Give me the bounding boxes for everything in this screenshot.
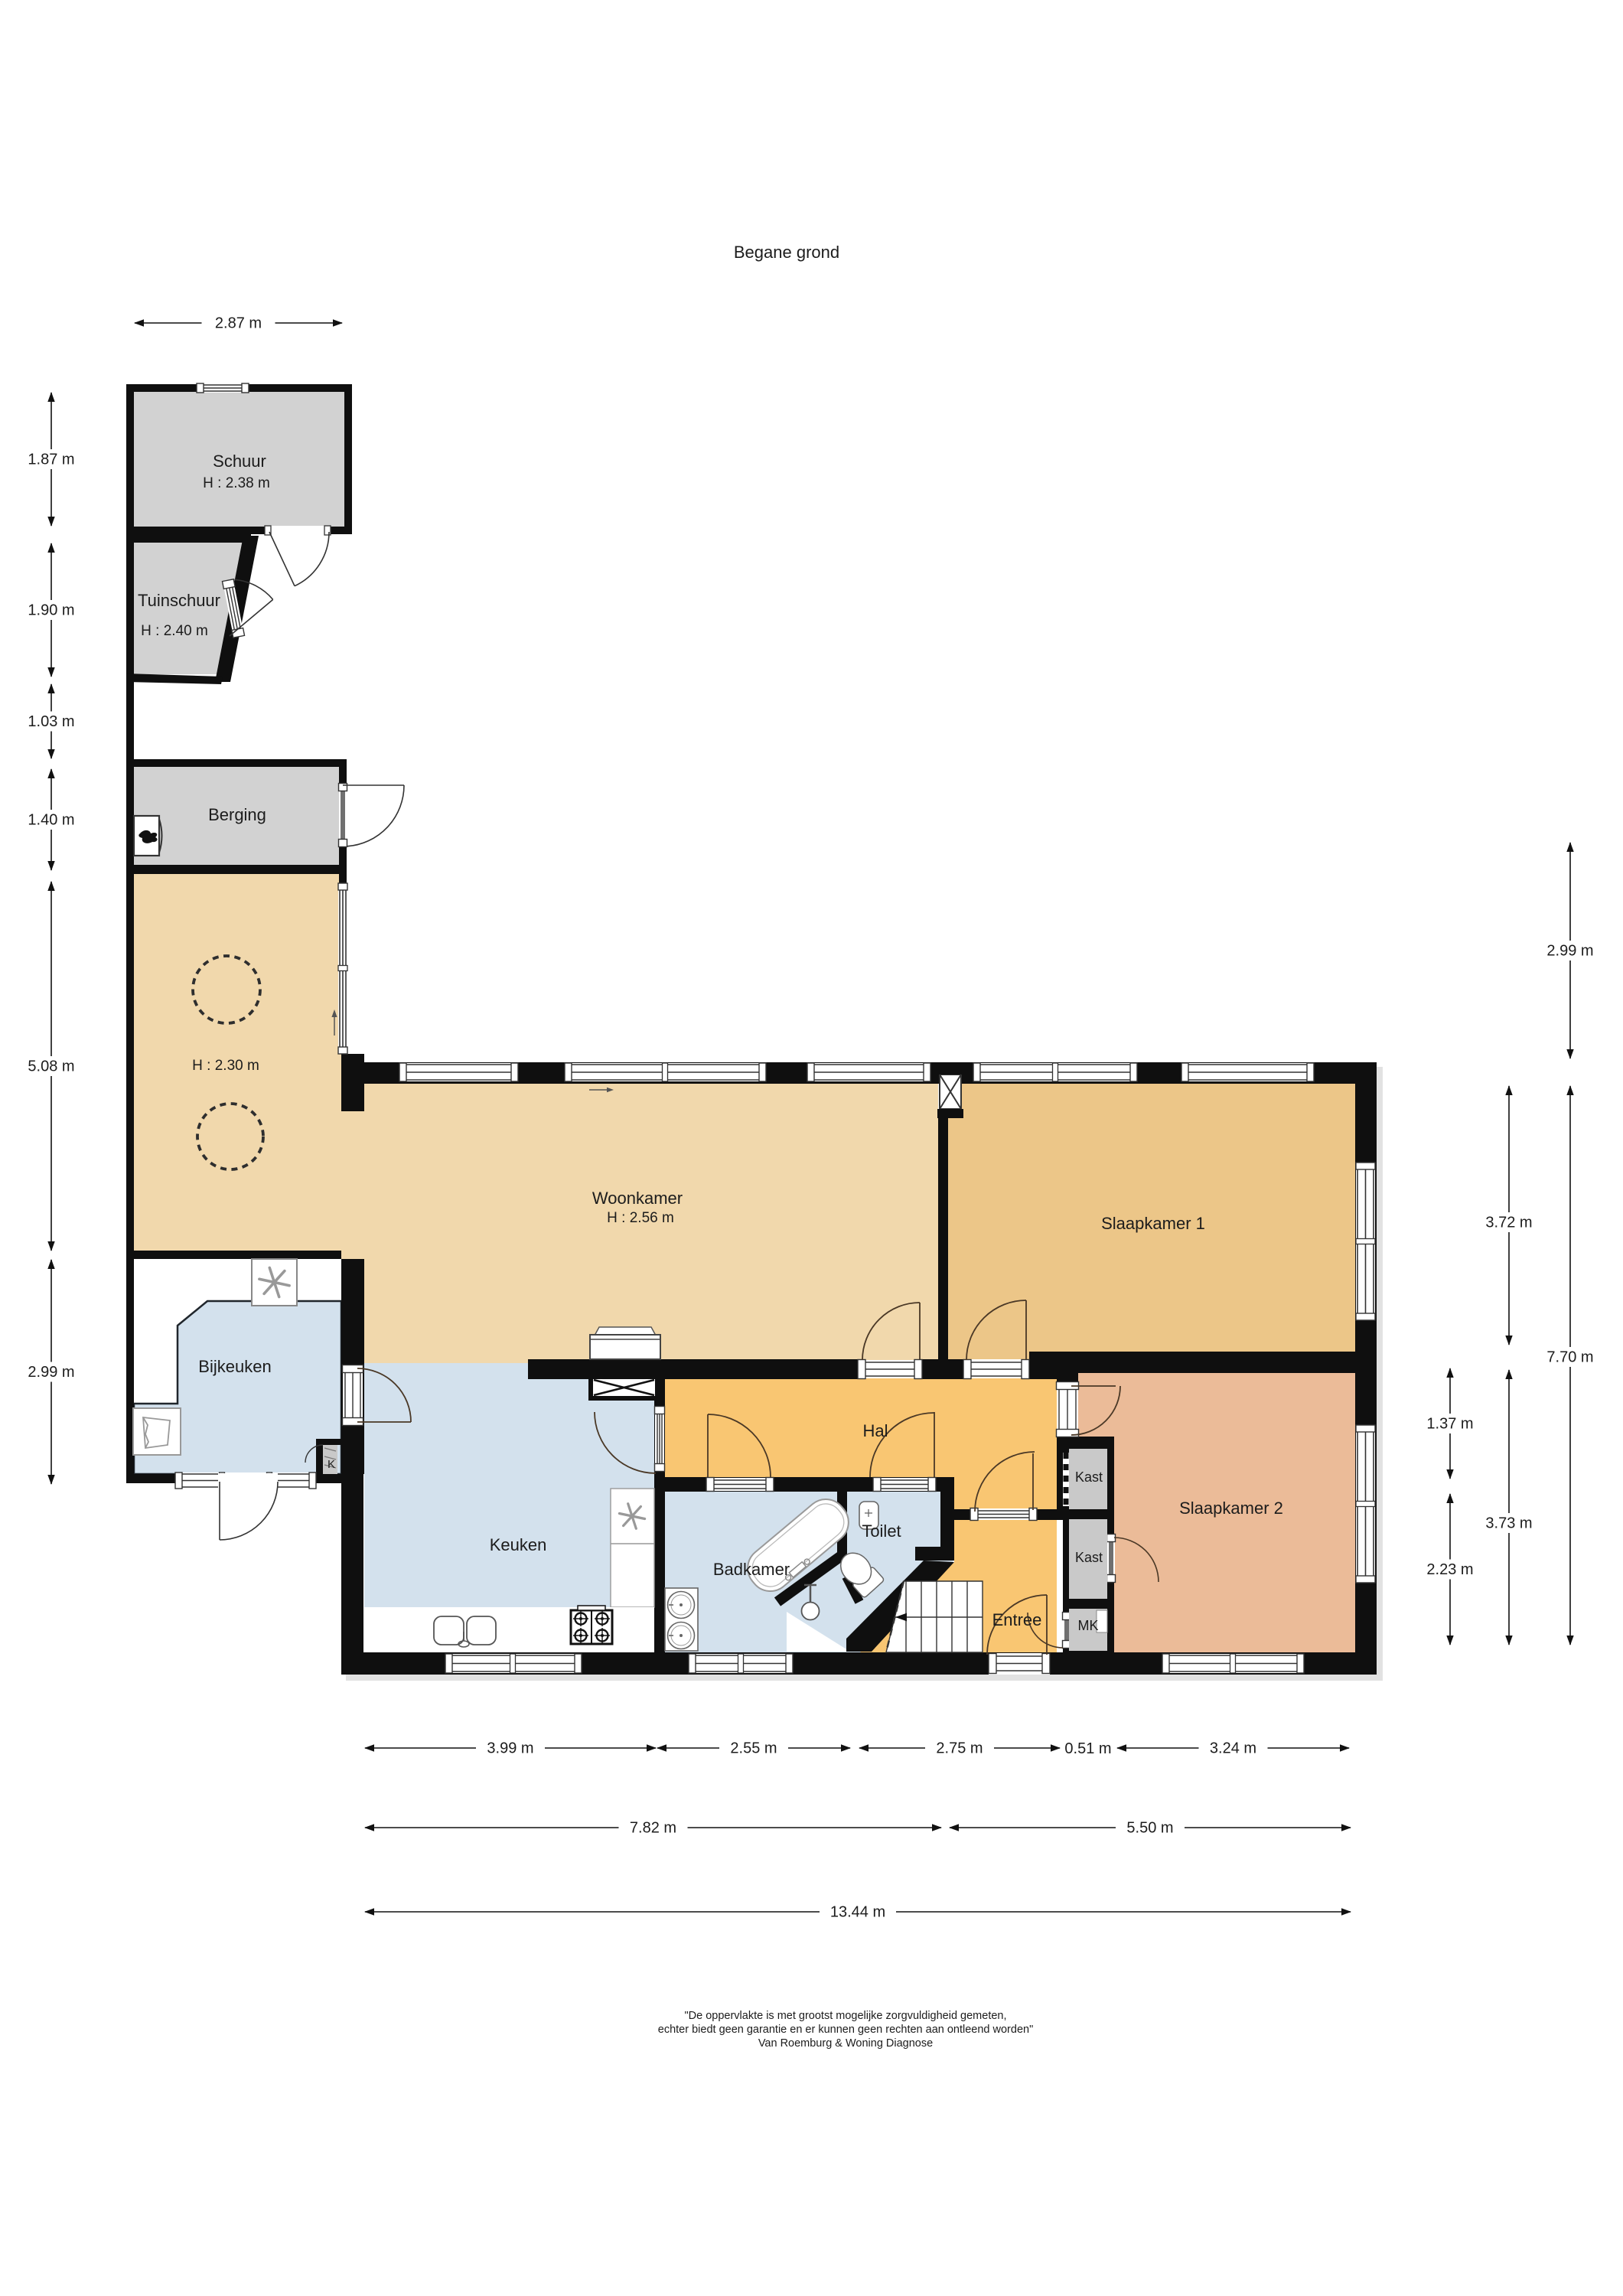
- svg-text:2.99 m: 2.99 m: [1546, 943, 1593, 960]
- svg-text:Tuinschuur: Tuinschuur: [138, 591, 220, 610]
- svg-text:3.72 m: 3.72 m: [1485, 1215, 1532, 1231]
- svg-text:Hal: Hal: [862, 1421, 888, 1440]
- svg-text:K: K: [328, 1458, 335, 1471]
- svg-text:3.99 m: 3.99 m: [487, 1740, 533, 1757]
- svg-text:echter biedt geen garantie en: echter biedt geen garantie en er kunnen …: [658, 2024, 1033, 2036]
- svg-text:1.37 m: 1.37 m: [1426, 1416, 1473, 1433]
- svg-text:Berging: Berging: [208, 805, 266, 824]
- svg-text:2.23 m: 2.23 m: [1426, 1561, 1473, 1578]
- svg-text:13.44 m: 13.44 m: [830, 1904, 885, 1921]
- svg-text:7.70 m: 7.70 m: [1546, 1349, 1593, 1366]
- svg-text:Slaapkamer 2: Slaapkamer 2: [1179, 1499, 1283, 1518]
- svg-text:7.82 m: 7.82 m: [630, 1820, 676, 1837]
- svg-text:Badkamer: Badkamer: [713, 1560, 790, 1579]
- svg-text:Kast: Kast: [1075, 1469, 1103, 1485]
- svg-text:1.90 m: 1.90 m: [28, 602, 74, 619]
- svg-text:H : 2.40 m: H : 2.40 m: [141, 623, 208, 639]
- svg-text:Toilet: Toilet: [862, 1521, 901, 1541]
- svg-text:Keuken: Keuken: [490, 1535, 547, 1554]
- svg-text:2.55 m: 2.55 m: [730, 1740, 777, 1757]
- svg-text:1.87 m: 1.87 m: [28, 452, 74, 468]
- svg-text:1.03 m: 1.03 m: [28, 713, 74, 730]
- svg-text:5.08 m: 5.08 m: [28, 1058, 74, 1075]
- svg-text:1.40 m: 1.40 m: [28, 812, 74, 829]
- svg-text:Begane grond: Begane grond: [734, 243, 839, 262]
- svg-text:3.73 m: 3.73 m: [1485, 1515, 1532, 1532]
- svg-text:"De oppervlakte is met grootst: "De oppervlakte is met grootst mogelijke…: [684, 2010, 1006, 2022]
- svg-text:MK: MK: [1078, 1618, 1099, 1633]
- svg-text:2.75 m: 2.75 m: [936, 1740, 983, 1757]
- svg-text:Entree: Entree: [992, 1610, 1042, 1629]
- svg-text:2.99 m: 2.99 m: [28, 1364, 74, 1381]
- svg-text:H : 2.38 m: H : 2.38 m: [203, 475, 270, 491]
- svg-text:Schuur: Schuur: [213, 452, 266, 471]
- svg-text:Bijkeuken: Bijkeuken: [198, 1357, 271, 1376]
- svg-text:H : 2.30 m: H : 2.30 m: [192, 1058, 259, 1074]
- svg-text:Kast: Kast: [1075, 1550, 1103, 1565]
- svg-text:Slaapkamer 1: Slaapkamer 1: [1101, 1214, 1205, 1233]
- svg-text:2.87 m: 2.87 m: [215, 315, 262, 332]
- svg-text:3.24 m: 3.24 m: [1210, 1740, 1256, 1757]
- svg-text:5.50 m: 5.50 m: [1126, 1820, 1173, 1837]
- svg-text:0.51 m: 0.51 m: [1064, 1740, 1111, 1757]
- svg-text:H : 2.56 m: H : 2.56 m: [607, 1210, 674, 1226]
- svg-text:Van Roemburg & Woning Diagnose: Van Roemburg & Woning Diagnose: [758, 2037, 933, 2050]
- svg-text:Woonkamer: Woonkamer: [592, 1189, 683, 1208]
